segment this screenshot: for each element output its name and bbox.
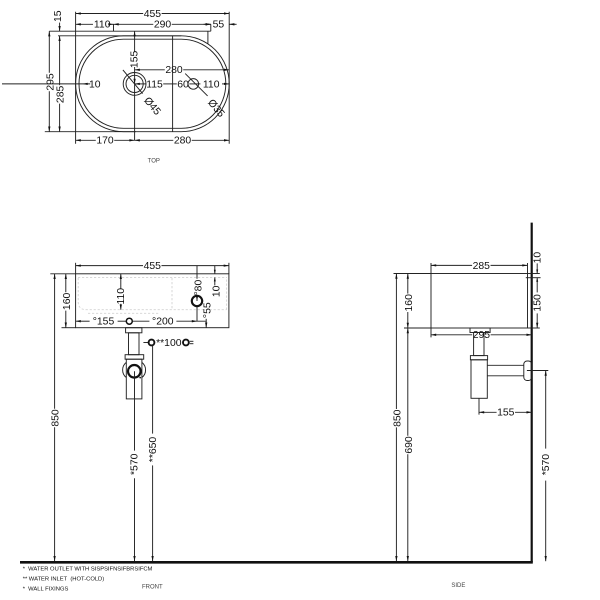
svg-text:SIDE: SIDE [451,583,465,589]
svg-text:285: 285 [56,86,67,104]
svg-text:295: 295 [473,330,491,341]
svg-text:°200: °200 [152,317,174,328]
svg-text:Ø45: Ø45 [141,95,162,117]
svg-text:10: 10 [212,285,223,297]
svg-text:°80: °80 [194,280,205,296]
svg-text:FRONT: FRONT [142,585,163,591]
svg-text:110: 110 [116,288,127,305]
svg-text:*570: *570 [130,453,141,475]
svg-text:850: 850 [51,409,62,427]
svg-text:850: 850 [392,409,403,427]
svg-text:155: 155 [130,51,141,69]
svg-text:115: 115 [146,79,163,90]
svg-text:160: 160 [62,293,73,311]
svg-text:*570: *570 [541,454,552,476]
svg-text:160: 160 [404,294,415,312]
svg-text:285: 285 [473,261,491,272]
svg-text:** WATER INLET (HOT-COLD): ** WATER INLET (HOT-COLD) [23,577,105,583]
svg-text:Ø35: Ø35 [205,98,226,120]
svg-text:155: 155 [497,408,515,419]
svg-text:* WALL FIXINGS: * WALL FIXINGS [23,587,69,593]
svg-text:455: 455 [144,261,162,272]
svg-text:10: 10 [532,252,543,264]
svg-text:10: 10 [89,79,101,90]
svg-text:455: 455 [144,9,162,20]
svg-text:170: 170 [96,136,114,147]
svg-text:* WATER OUTLET WITH SISPSIFNS: * WATER OUTLET WITH SISPSIFNSIFBRSIFCM [23,566,153,572]
svg-text:110: 110 [94,20,111,31]
svg-text:690: 690 [404,436,415,454]
svg-text:15: 15 [53,10,64,22]
svg-text:110: 110 [203,79,220,90]
svg-text:°155: °155 [93,317,115,328]
svg-text:55: 55 [213,20,225,31]
svg-text:**650: **650 [148,437,159,463]
svg-text:**100: **100 [156,338,182,349]
svg-text:°55: °55 [203,302,214,318]
svg-text:150: 150 [532,294,543,312]
svg-text:290: 290 [154,20,172,31]
svg-text:TOP: TOP [148,159,160,165]
svg-text:60: 60 [177,79,189,90]
svg-text:280: 280 [174,136,192,147]
svg-text:280: 280 [165,65,183,76]
